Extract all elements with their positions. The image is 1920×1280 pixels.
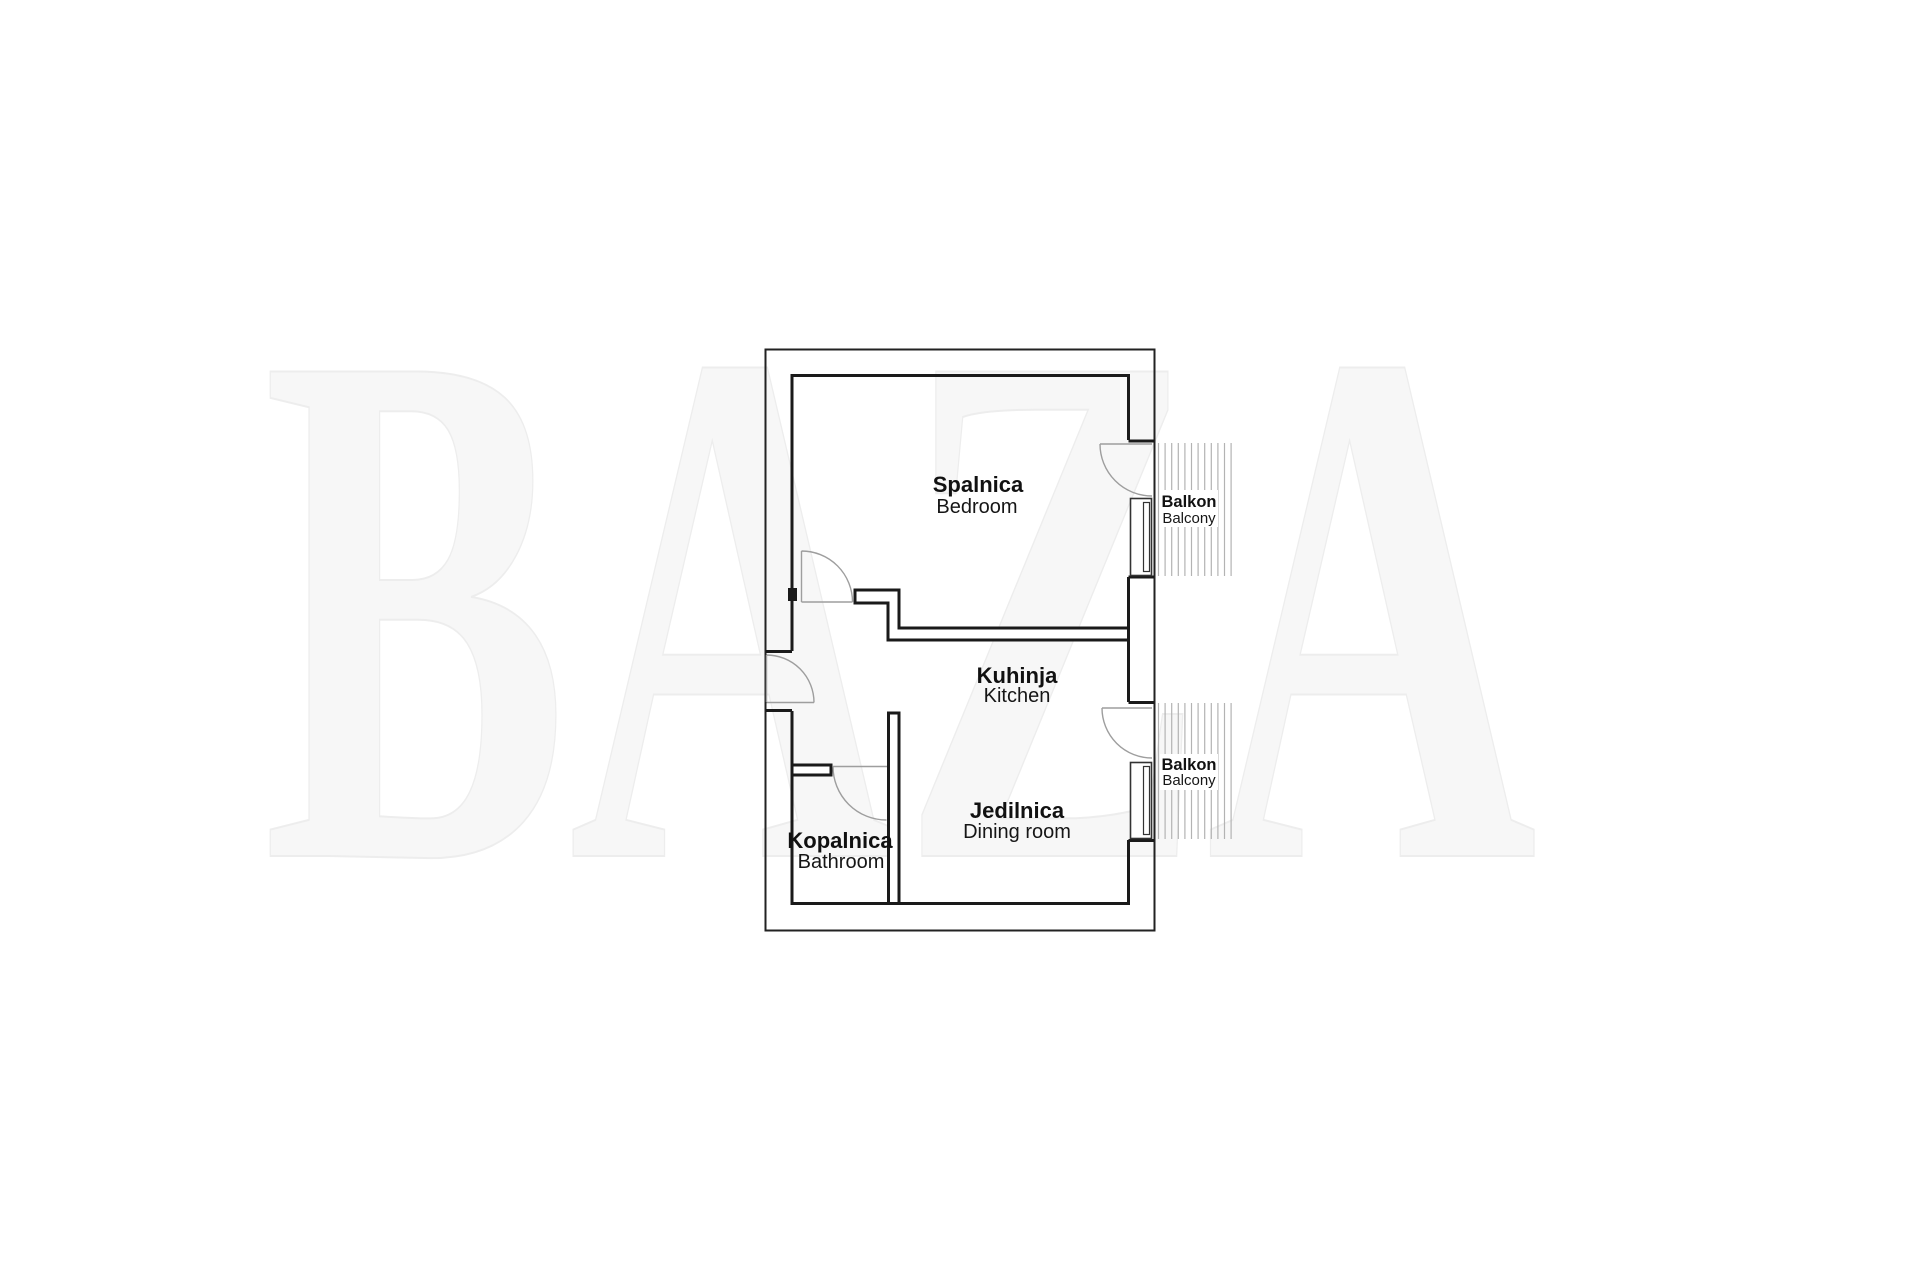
balcony-top-label-sl: Balkon: [1161, 493, 1216, 511]
bathroom-north-wall: [792, 765, 831, 775]
bedroom-balcony-window-sash: [1144, 503, 1150, 572]
bathroom-label-sl: Kopalnica: [787, 828, 893, 853]
balcony-top-label-en: Balcony: [1162, 510, 1216, 527]
dining-balcony-window-sash: [1144, 767, 1150, 835]
dining-label-sl: Jedilnica: [970, 798, 1065, 823]
bedroom-label-en: Bedroom: [936, 496, 1017, 518]
bedroom-label-sl: Spalnica: [933, 472, 1024, 497]
floor-plan: BAZA: [0, 0, 1920, 1280]
balcony-bottom-label-en: Balcony: [1162, 772, 1216, 789]
dining-label-en: Dining room: [963, 821, 1071, 843]
divider-wall: [889, 713, 900, 904]
kitchen-label-en: Kitchen: [984, 685, 1051, 707]
door-jamb: [788, 588, 797, 601]
bathroom-label-en: Bathroom: [798, 851, 885, 873]
